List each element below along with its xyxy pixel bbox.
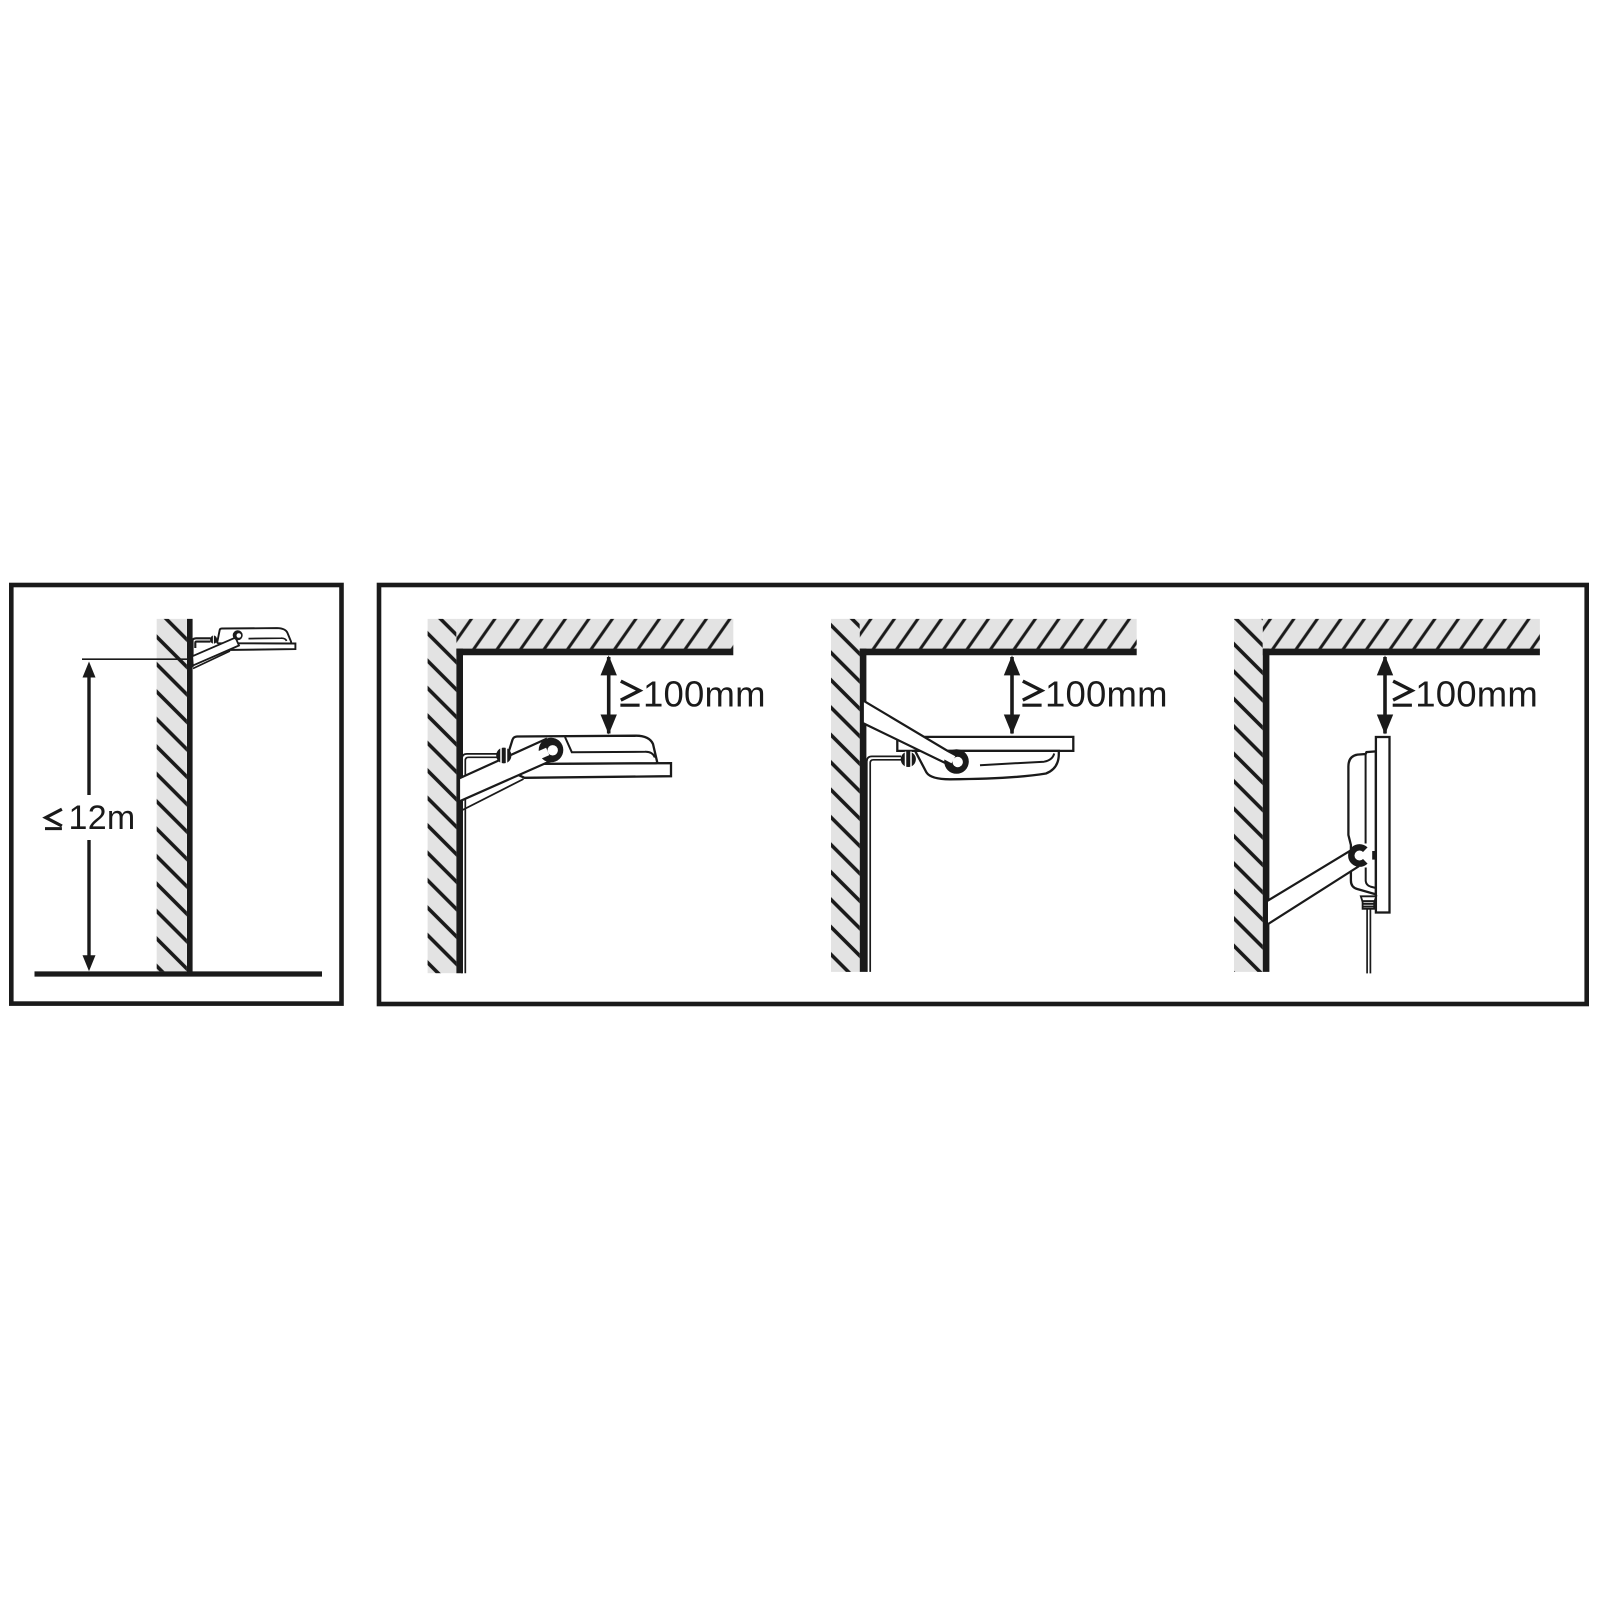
svg-text:12m: 12m <box>69 799 136 837</box>
svg-text:100mm: 100mm <box>643 674 766 715</box>
svg-text:100mm: 100mm <box>1045 674 1168 715</box>
svg-text:100mm: 100mm <box>1415 674 1538 715</box>
